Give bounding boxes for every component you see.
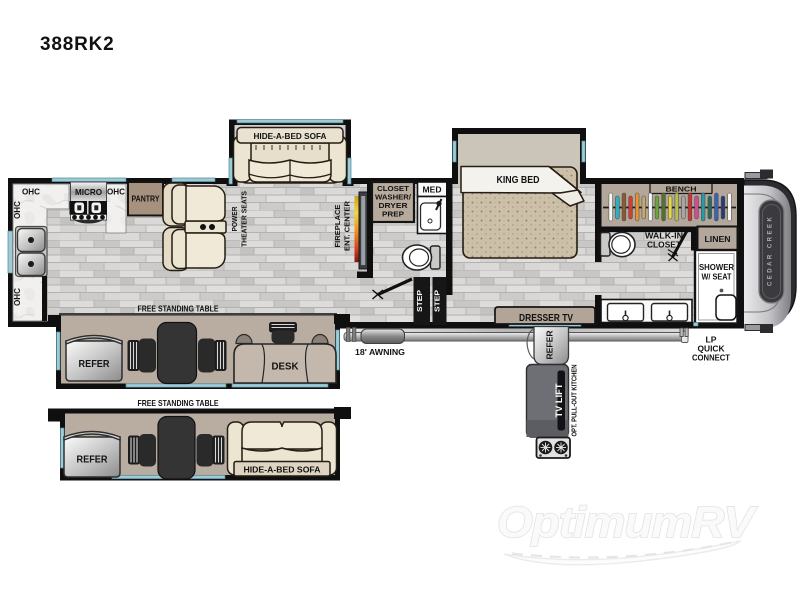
svg-text:WALK-IN: WALK-IN	[645, 232, 683, 241]
svg-text:STEP: STEP	[433, 290, 442, 312]
svg-text:REFER: REFER	[79, 359, 111, 370]
svg-text:OHC: OHC	[107, 188, 125, 197]
svg-text:REFER: REFER	[545, 331, 555, 360]
svg-text:LINEN: LINEN	[705, 235, 731, 244]
svg-text:DESK: DESK	[272, 362, 300, 373]
svg-text:HIDE-A-BED SOFA: HIDE-A-BED SOFA	[254, 131, 327, 141]
svg-text:DRESSER TV: DRESSER TV	[519, 313, 573, 324]
svg-text:W/ SEAT: W/ SEAT	[702, 273, 732, 282]
svg-text:FREE STANDING TABLE: FREE STANDING TABLE	[138, 398, 219, 408]
svg-text:OHC: OHC	[22, 188, 40, 197]
svg-text:388RK2: 388RK2	[40, 34, 115, 55]
svg-text:CEDAR CREEK: CEDAR CREEK	[768, 216, 774, 286]
svg-text:DRYER: DRYER	[379, 203, 408, 210]
svg-text:STEP: STEP	[415, 290, 424, 312]
svg-text:PREP: PREP	[382, 212, 404, 219]
svg-text:CLOSET: CLOSET	[377, 186, 410, 193]
svg-text:MICRO: MICRO	[75, 187, 102, 197]
svg-text:OPT. PULL-OUT KITCHEN: OPT. PULL-OUT KITCHEN	[572, 365, 579, 437]
svg-text:TV LIFT: TV LIFT	[554, 383, 564, 418]
svg-text:OHC: OHC	[13, 288, 22, 306]
svg-text:FIREPLACE: FIREPLACE	[333, 204, 342, 247]
svg-text:LP: LP	[706, 336, 717, 345]
svg-text:PANTRY: PANTRY	[132, 194, 160, 204]
svg-text:FREE STANDING TABLE: FREE STANDING TABLE	[138, 304, 219, 314]
svg-text:MED: MED	[423, 186, 442, 195]
svg-text:OHC: OHC	[13, 201, 22, 219]
svg-text:KING BED: KING BED	[497, 175, 540, 186]
svg-text:WASHER/: WASHER/	[375, 195, 411, 202]
svg-text:HIDE-A-BED SOFA: HIDE-A-BED SOFA	[244, 465, 321, 475]
svg-text:SHOWER: SHOWER	[699, 263, 734, 272]
svg-text:OptimumRV: OptimumRV	[497, 498, 758, 547]
svg-text:ENT. CENTER: ENT. CENTER	[343, 200, 352, 251]
svg-text:THEATER SEATS: THEATER SEATS	[240, 191, 249, 247]
svg-text:QUICK: QUICK	[698, 345, 725, 354]
svg-text:POWER: POWER	[230, 206, 239, 232]
svg-text:CONNECT: CONNECT	[692, 354, 730, 363]
svg-text:18' AWNING: 18' AWNING	[355, 347, 405, 357]
svg-text:BENCH: BENCH	[666, 185, 697, 194]
svg-text:REFER: REFER	[77, 455, 109, 466]
